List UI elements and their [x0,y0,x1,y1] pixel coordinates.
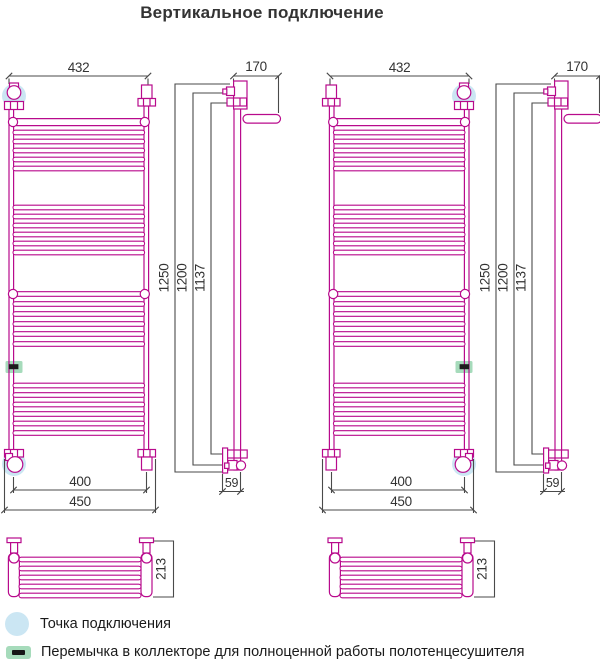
page-title: Вертикальное подключение [0,3,524,23]
front-labels-right-group [389,60,412,509]
front-view-right-group-mirrored [319,73,476,513]
side-view-right-group [478,59,600,495]
legend-item-connection-point: Точка подключения [5,612,595,636]
plan-view-left-group [7,538,174,598]
legend-label-connection-point: Точка подключения [40,616,171,632]
plan-view-right-group [328,538,495,598]
jumper-dash-icon [12,650,25,655]
towel-radiator-connection-diagram: 432 400 450 [0,0,600,662]
technical-drawing: 432 400 450 [0,0,600,662]
legend-label-jumper: Перемычка в коллекторе для полноценной р… [41,644,524,660]
legend-item-jumper: Перемычка в коллекторе для полноценной р… [5,644,595,660]
side-view-left-group [157,59,282,495]
front-view-left-group [1,73,158,513]
legend: Точка подключения Перемычка в коллекторе… [5,612,595,662]
connection-point-marker-icon [5,612,29,636]
jumper-marker-icon [6,646,31,659]
front-labels-left-group [68,60,91,509]
